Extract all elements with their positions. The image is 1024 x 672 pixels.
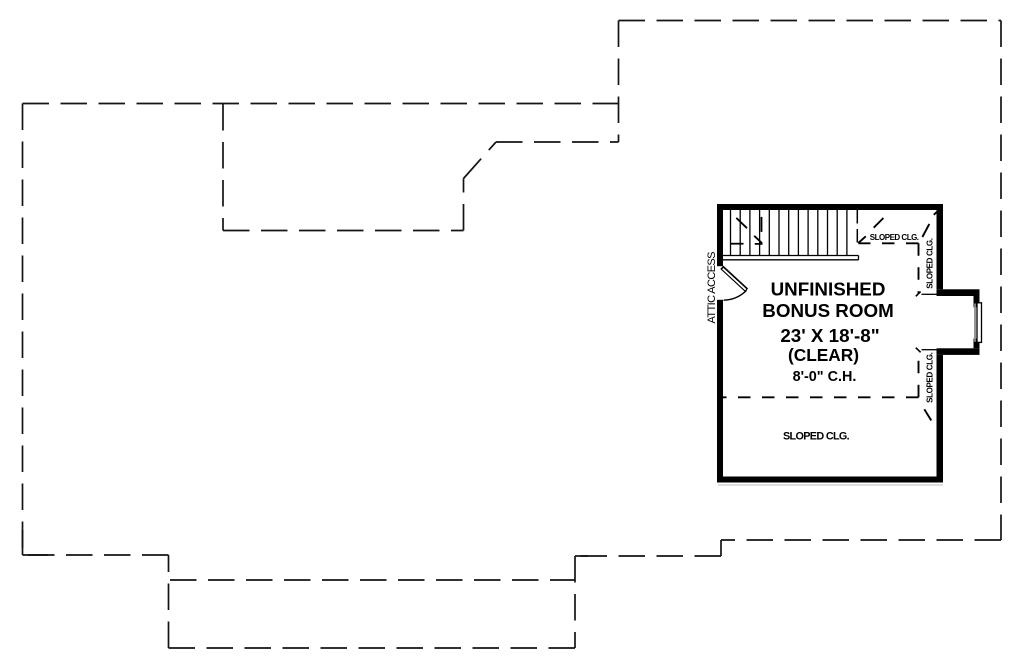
svg-text:23' X 18'-8": 23' X 18'-8" [780,325,879,346]
svg-text:BONUS ROOM: BONUS ROOM [762,300,893,321]
svg-text:8'-0" C.H.: 8'-0" C.H. [793,369,857,385]
svg-text:SLOPED CLG.: SLOPED CLG. [925,238,934,289]
svg-text:UNFINISHED: UNFINISHED [771,279,886,300]
svg-text:SLOPED CLG.: SLOPED CLG. [783,431,850,443]
svg-text:SLOPED CLG.: SLOPED CLG. [925,352,934,403]
svg-text:ATTIC ACCESS: ATTIC ACCESS [706,252,718,324]
svg-text:SLOPED CLG.: SLOPED CLG. [870,233,919,242]
svg-text:(CLEAR): (CLEAR) [788,345,859,365]
